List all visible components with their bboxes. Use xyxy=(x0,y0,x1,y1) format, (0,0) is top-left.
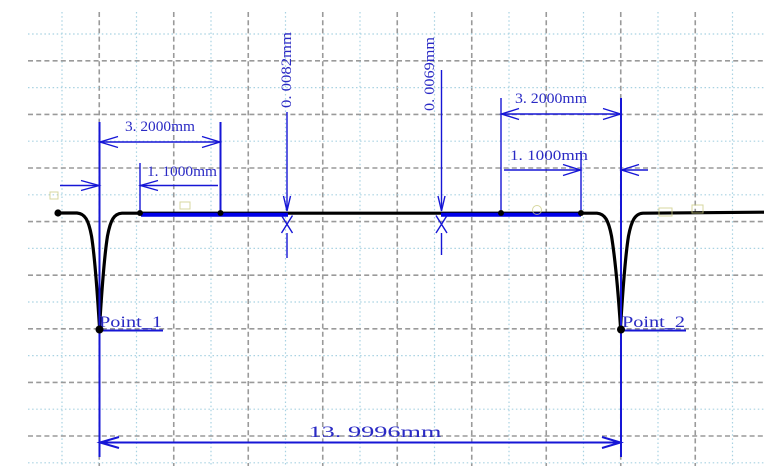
zone-dot xyxy=(578,210,584,216)
dimension-label: 1. 1000mm xyxy=(147,164,217,180)
profile-measurement-chart: 3. 2000mm 1. 1000mm 0. 0082mm 0. 0069mm … xyxy=(0,0,764,469)
dimension-0-0082mm: 0. 0082mm xyxy=(279,32,295,258)
dimension-label: 3. 2000mm xyxy=(125,119,195,135)
grid xyxy=(28,12,764,466)
zone-dot xyxy=(498,210,504,216)
zone-dot xyxy=(218,210,224,216)
dimension-label: 0. 0082mm xyxy=(279,32,295,108)
olive-marker xyxy=(50,192,58,199)
point2-label: Point_2 xyxy=(622,314,685,331)
point1-tip-dot xyxy=(96,326,104,334)
olive-marker xyxy=(180,202,190,209)
dimension-1-1mm-right: 1. 1000mm xyxy=(504,148,648,176)
zone-dot xyxy=(137,210,143,216)
dimension-label: 13. 9996mm xyxy=(309,424,442,441)
dimension-3-2mm-right: 3. 2000mm xyxy=(501,91,621,120)
point1-label: Point_1 xyxy=(99,314,162,331)
chart-canvas: 3. 2000mm 1. 1000mm 0. 0082mm 0. 0069mm … xyxy=(0,0,764,469)
dimension-label: 3. 2000mm xyxy=(515,91,587,107)
dimension-label: 1. 1000mm xyxy=(510,148,588,164)
dimension-label: 0. 0069mm xyxy=(422,37,438,111)
arrow-up-cross-icon xyxy=(282,216,293,234)
point1-label-group: Point_1 xyxy=(99,314,163,331)
arrow-up-cross-icon xyxy=(436,216,447,234)
point2-label-group: Point_2 xyxy=(621,314,686,331)
dimension-3-2mm-left: 3. 2000mm xyxy=(100,119,221,148)
point2-tip-dot xyxy=(617,326,625,334)
trace-start-dot xyxy=(54,209,61,216)
